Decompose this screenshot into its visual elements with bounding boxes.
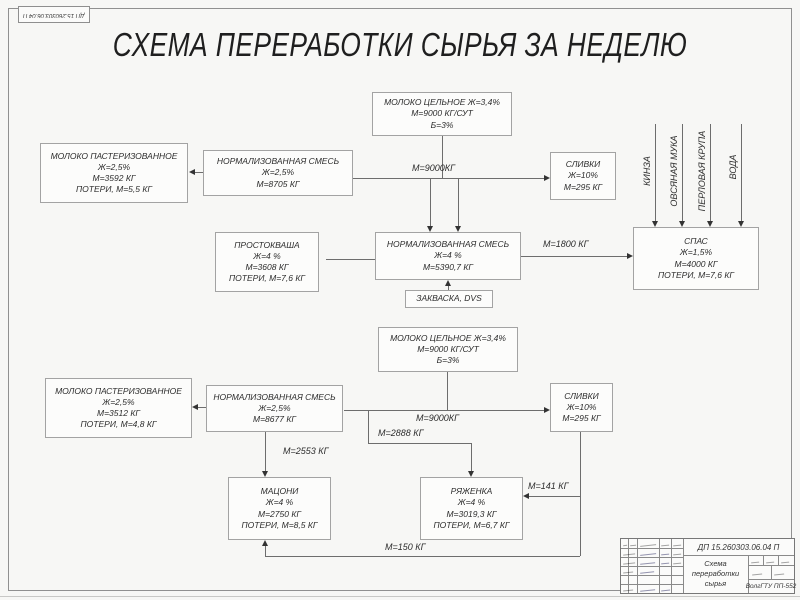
flow-arrowhead-icon [523, 493, 529, 499]
flow-line [458, 178, 459, 226]
node-past-milk-1: МОЛОКО ПАСТЕРИЗОВАННОЕЖ=2,5%М=3592 КГПОТ… [40, 143, 188, 203]
input-label-ovsyanaya-muka: ОВСЯНАЯ МУКА [669, 116, 679, 226]
node-text-line: ПРОСТОКВАША [234, 240, 299, 251]
flow-line [344, 410, 544, 411]
flow-line [580, 432, 581, 556]
flow-arrowhead-icon [707, 221, 713, 227]
node-text-line: ПОТЕРИ, М=6,7 КГ [434, 520, 510, 531]
node-norm-mix-1: НОРМАЛИЗОВАННАЯ СМЕСЬЖ=2,5%М=8705 КГ [203, 150, 353, 196]
node-text-line: ПОТЕРИ, М=7,6 КГ [229, 273, 305, 284]
node-text-line: М=2750 КГ [258, 509, 301, 520]
flow-arrowhead-icon [679, 221, 685, 227]
node-text-line: М=3608 КГ [246, 262, 289, 273]
node-text-line: М=4000 КГ [675, 259, 718, 270]
input-label-perlovaya-krupa: ПЕРЛОВАЯ КРУПА [697, 116, 707, 226]
node-norm-mix-2: НОРМАЛИЗОВАННАЯ СМЕСЬЖ=4 %М=5390,7 КГ [375, 232, 521, 280]
node-prostokvasha: ПРОСТОКВАШАЖ=4 %М=3608 КГПОТЕРИ, М=7,6 К… [215, 232, 319, 292]
node-text-line: М=9000 КГ/СУТ [417, 344, 479, 355]
node-text-line: СЛИВКИ [564, 391, 599, 402]
node-text-line: М=3512 КГ [97, 408, 140, 419]
flow-line [265, 546, 266, 556]
flow-label-to-spas: М=1800 КГ [543, 239, 588, 249]
node-text-line: НОРМАЛИЗОВАННАЯ СМЕСЬ [217, 156, 339, 167]
node-text-line: НОРМАЛИЗОВАННАЯ СМЕСЬ [387, 239, 509, 250]
node-text-line: СПАС [684, 236, 708, 247]
node-text-line: РЯЖЕНКА [451, 486, 493, 497]
flow-line [265, 432, 266, 471]
node-text-line: Ж=10% [567, 402, 597, 413]
node-text-line: М=3019,3 КГ [446, 509, 496, 520]
flow-line [353, 178, 548, 179]
doc-title: Схема переработки сырья [683, 555, 748, 593]
flow-line [471, 443, 472, 471]
flow-arrowhead-icon [627, 253, 633, 259]
node-text-line: М=5390,7 КГ [423, 262, 473, 273]
flow-line [741, 124, 742, 221]
node-text-line: СЛИВКИ [566, 159, 601, 170]
flow-line [265, 556, 580, 557]
node-text-line: МОЛОКО ПАСТЕРИЗОВАННОЕ [51, 151, 178, 162]
flow-arrowhead-icon [427, 226, 433, 232]
flow-line [368, 410, 369, 443]
node-text-line: МОЛОКО ПАСТЕРИЗОВАННОЕ [55, 386, 182, 397]
corner-stamp-text: ДП 15.260303.06.04 П [23, 12, 84, 18]
node-text-line: Б=3% [431, 120, 454, 131]
node-text-line: ПОТЕРИ, М=8,5 КГ [242, 520, 318, 531]
node-text-line: М=8677 КГ [253, 414, 296, 425]
flow-line [448, 286, 449, 290]
node-text-line: ПОТЕРИ, М=5,5 КГ [76, 184, 152, 195]
node-whole-milk-2: МОЛОКО ЦЕЛЬНОЕ Ж=3,4%М=9000 КГ/СУТБ=3% [378, 327, 518, 372]
node-text-line: М=295 КГ [564, 182, 602, 193]
flow-label-to-matsoni: М=2553 КГ [283, 446, 328, 456]
flow-label-top-milk: М=9000КГ [412, 163, 455, 173]
node-text-line: Б=3% [437, 355, 460, 366]
scan-edge [0, 596, 800, 597]
node-text-line: Ж=4 % [458, 497, 485, 508]
flow-line [710, 124, 711, 221]
flow-line [529, 496, 580, 497]
flow-arrowhead-icon [192, 404, 198, 410]
node-cream-1: СЛИВКИЖ=10%М=295 КГ [550, 152, 616, 200]
node-spas: СПАСЖ=1,5%М=4000 КГПОТЕРИ, М=7,6 КГ [633, 227, 759, 290]
node-text-line: ПОТЕРИ, М=7,6 КГ [658, 270, 734, 281]
input-label-kinza: КИНЗА [642, 116, 652, 226]
flow-arrowhead-icon [738, 221, 744, 227]
flow-arrowhead-icon [262, 540, 268, 546]
node-text-line: НОРМАЛИЗОВАННАЯ СМЕСЬ [213, 392, 335, 403]
flow-arrowhead-icon [262, 471, 268, 477]
node-text-line: ПОТЕРИ, М=4,8 КГ [81, 419, 157, 430]
node-text-line: МОЛОКО ЦЕЛЬНОЕ Ж=3,4% [390, 333, 506, 344]
node-text-line: Ж=4 % [266, 497, 293, 508]
node-text-line: Ж=2,5% [262, 167, 294, 178]
flow-arrowhead-icon [544, 175, 550, 181]
title-block: ДП 15.260303.06.04 П Схема переработки с… [620, 538, 795, 594]
flow-line [655, 124, 656, 221]
flow-arrowhead-icon [455, 226, 461, 232]
node-whole-milk-1: МОЛОКО ЦЕЛЬНОЕ Ж=3,4%М=9000 КГ/СУТБ=3% [372, 92, 512, 136]
flow-arrowhead-icon [189, 169, 195, 175]
page-title: СХЕМА ПЕРЕРАБОТКИ СЫРЬЯ ЗА НЕДЕЛЮ [80, 26, 720, 64]
flow-line [430, 178, 431, 226]
flow-label-to-ryazhenka: М=2888 КГ [378, 428, 423, 438]
node-ryazhenka: РЯЖЕНКАЖ=4 %М=3019,3 КГПОТЕРИ, М=6,7 КГ [420, 477, 523, 540]
doc-number: ДП 15.260303.06.04 П [683, 539, 794, 555]
flow-line [447, 372, 448, 410]
node-text-line: МОЛОКО ЦЕЛЬНОЕ Ж=3,4% [384, 97, 500, 108]
node-text-line: МАЦОНИ [261, 486, 299, 497]
flow-arrowhead-icon [445, 280, 451, 286]
flow-label-cream-to-matsoni: М=150 КГ [385, 542, 425, 552]
flow-line [198, 407, 206, 408]
node-text-line: Ж=4 % [253, 251, 280, 262]
flow-line [682, 124, 683, 221]
organization-name: ВолгГТУ ПП-552 [748, 579, 794, 593]
flow-line [521, 256, 627, 257]
node-text-line: М=9000 КГ/СУТ [411, 108, 473, 119]
node-past-milk-2: МОЛОКО ПАСТЕРИЗОВАННОЕЖ=2,5%М=3512 КГПОТ… [45, 378, 192, 438]
input-label-voda: ВОДА [728, 112, 738, 222]
flow-arrowhead-icon [652, 221, 658, 227]
node-text-line: Ж=2,5% [258, 403, 290, 414]
node-text-line: Ж=10% [568, 170, 598, 181]
flow-arrowhead-icon [544, 407, 550, 413]
node-text-line: М=8705 КГ [257, 179, 300, 190]
drawing-sheet: ДП 15.260303.06.04 П СХЕМА ПЕРЕРАБОТКИ С… [0, 0, 800, 600]
node-text-line: Ж=4 % [434, 250, 461, 261]
node-text-line: М=295 КГ [562, 413, 600, 424]
corner-stamp: ДП 15.260303.06.04 П [18, 6, 90, 23]
node-matsoni: МАЦОНИЖ=4 %М=2750 КГПОТЕРИ, М=8,5 КГ [228, 477, 331, 540]
node-text-line: Ж=2,5% [98, 162, 130, 173]
node-text-line: М=3592 КГ [93, 173, 136, 184]
node-text-line: Ж=1,5% [680, 247, 712, 258]
flow-label-bottom-milk: М=9000КГ [416, 413, 459, 423]
node-text-line: Ж=2,5% [102, 397, 134, 408]
node-text-line: ЗАКВАСКА, DVS [416, 293, 482, 304]
node-cream-2: СЛИВКИЖ=10%М=295 КГ [550, 383, 613, 432]
flow-line [195, 172, 203, 173]
flow-label-cream-to-ryazhenka: М=141 КГ [528, 481, 568, 491]
flow-line [368, 443, 471, 444]
flow-arrowhead-icon [468, 471, 474, 477]
flow-line [326, 259, 375, 260]
node-zakvaska: ЗАКВАСКА, DVS [405, 290, 493, 308]
node-norm-mix-3: НОРМАЛИЗОВАННАЯ СМЕСЬЖ=2,5%М=8677 КГ [206, 385, 343, 432]
